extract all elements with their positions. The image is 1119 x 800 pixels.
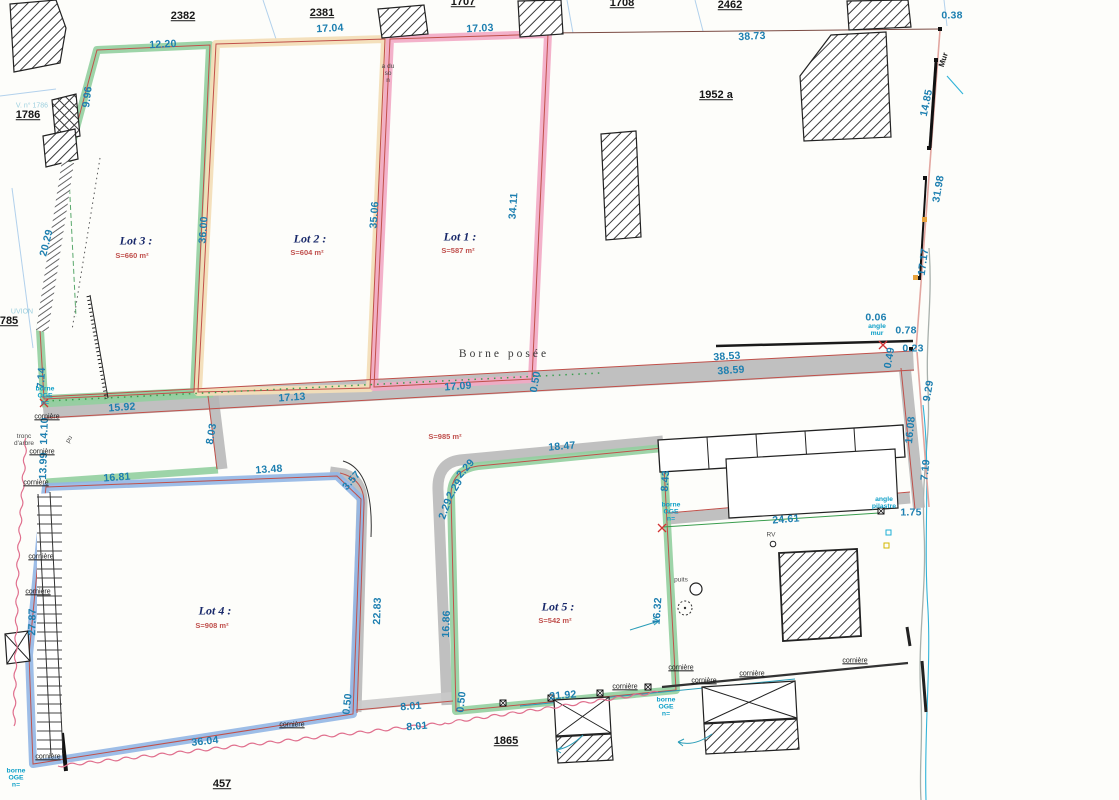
building-bottomright bbox=[779, 549, 861, 641]
building-top-mid-a bbox=[378, 5, 428, 38]
puits-circle bbox=[690, 583, 702, 595]
plan-drawing bbox=[0, 0, 1119, 800]
cadastral-plan: 2382 2381 1707 1708 2462 1952 a 1786 785… bbox=[0, 0, 1119, 800]
marker-orange-a bbox=[922, 217, 927, 222]
marker-orange-b bbox=[913, 275, 918, 280]
building-topleft bbox=[10, 0, 66, 72]
building-1952a bbox=[601, 131, 641, 240]
building-hatch-belowB bbox=[704, 719, 799, 754]
shed-outline bbox=[726, 449, 898, 518]
building-topright-a bbox=[847, 0, 911, 30]
building-top-mid-b bbox=[518, 0, 563, 37]
rv-circle bbox=[770, 541, 776, 547]
bush-center-dot bbox=[684, 607, 686, 609]
building-hatch-belowA bbox=[556, 734, 613, 763]
